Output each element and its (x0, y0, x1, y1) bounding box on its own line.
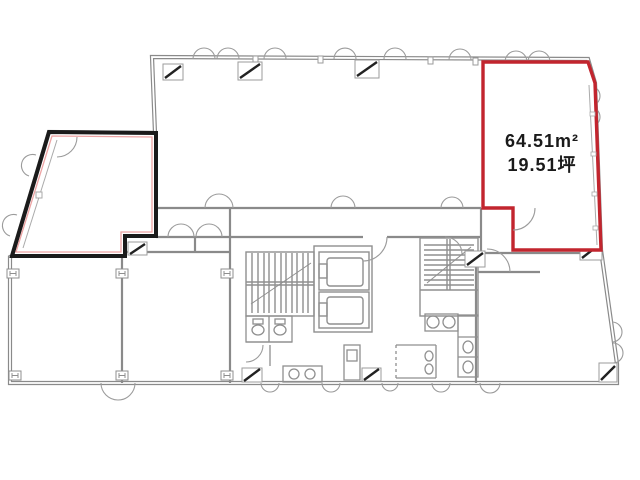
area-label-sqm: 64.51m² (505, 131, 579, 151)
unit-secondary-outline (12, 132, 156, 256)
floor-plan-drawing: 64.51m² 19.51坪 (0, 0, 640, 480)
area-label-tsubo: 19.51坪 (507, 155, 576, 175)
floor-plan-page: 64.51m² 19.51坪 (0, 0, 640, 480)
